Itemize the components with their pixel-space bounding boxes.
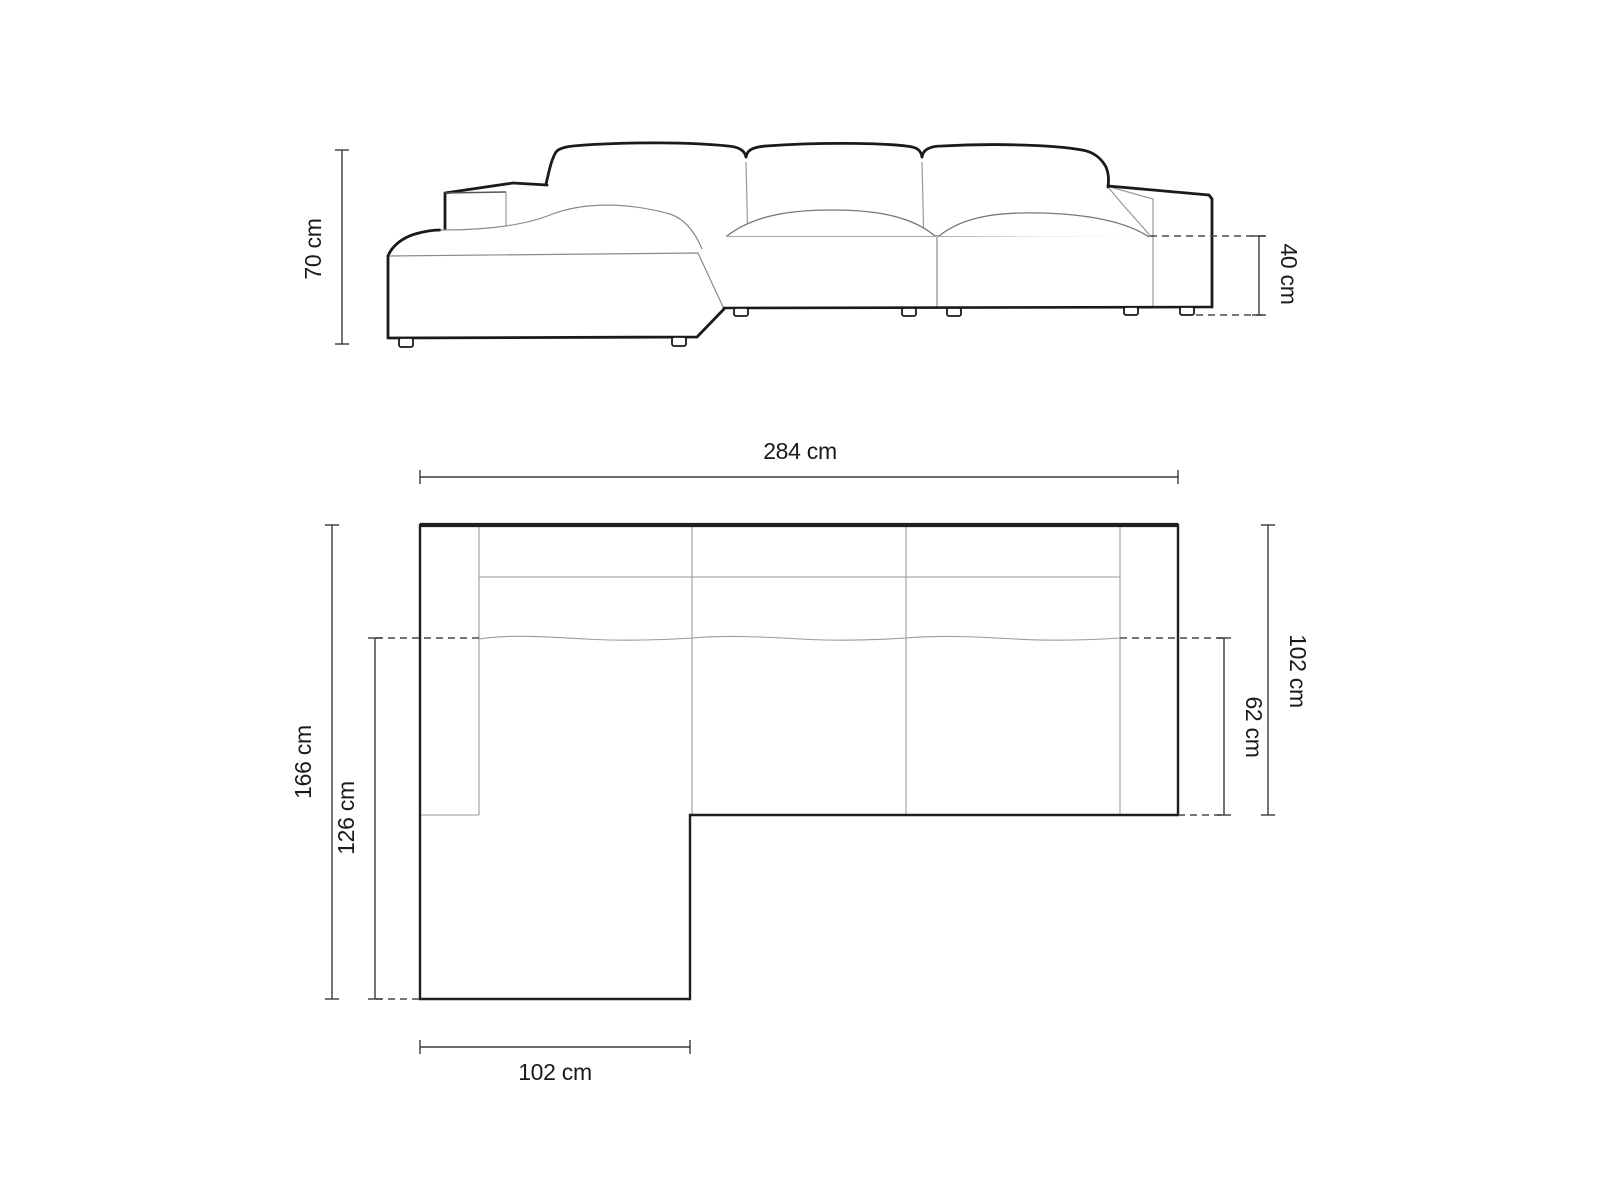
dim-total-depth [325, 525, 339, 999]
plan-outline [420, 525, 1178, 999]
dim-chaise-depth [368, 638, 382, 999]
dim-label-total-height: 70 cm [300, 218, 326, 279]
chaise-front-block [388, 253, 724, 338]
dim-label-chaise-depth: 126 cm [333, 781, 359, 855]
leg [399, 338, 413, 347]
front-elevation-view: 70 cm 40 cm [300, 143, 1302, 347]
diagram-canvas: 70 cm 40 cm [0, 0, 1600, 1200]
leg [947, 308, 961, 316]
leg [1124, 307, 1138, 315]
dim-total-width [420, 470, 1178, 484]
dim-label-seat-height: 40 cm [1276, 243, 1302, 304]
seat-base [720, 235, 1212, 308]
dim-total-height [335, 150, 349, 344]
dim-label-total-width: 284 cm [763, 438, 837, 464]
leg [902, 308, 916, 316]
dim-body-depth [1261, 525, 1275, 815]
dim-chaise-width [420, 1040, 690, 1054]
leg [672, 337, 686, 346]
base-bottom-edge [724, 307, 1212, 308]
leg [734, 308, 748, 316]
top-plan-view: 284 cm 166 cm 126 cm 102 cm 62 cm [290, 438, 1311, 1085]
leg [1180, 307, 1194, 315]
plan-interior-lines [420, 525, 1120, 815]
plan-seat-front-line [479, 636, 1120, 640]
plan-dashed-references [376, 638, 1224, 999]
sofa-dimensions-diagram-page: 70 cm 40 cm [0, 0, 1600, 1200]
dim-label-seat-depth: 62 cm [1241, 696, 1267, 757]
dim-label-total-depth: 166 cm [290, 725, 316, 799]
chaise-seat-surface [388, 205, 702, 256]
dim-label-chaise-width: 102 cm [518, 1059, 592, 1085]
dim-seat-depth [1217, 638, 1231, 815]
dim-label-body-depth: 102 cm [1285, 634, 1311, 708]
